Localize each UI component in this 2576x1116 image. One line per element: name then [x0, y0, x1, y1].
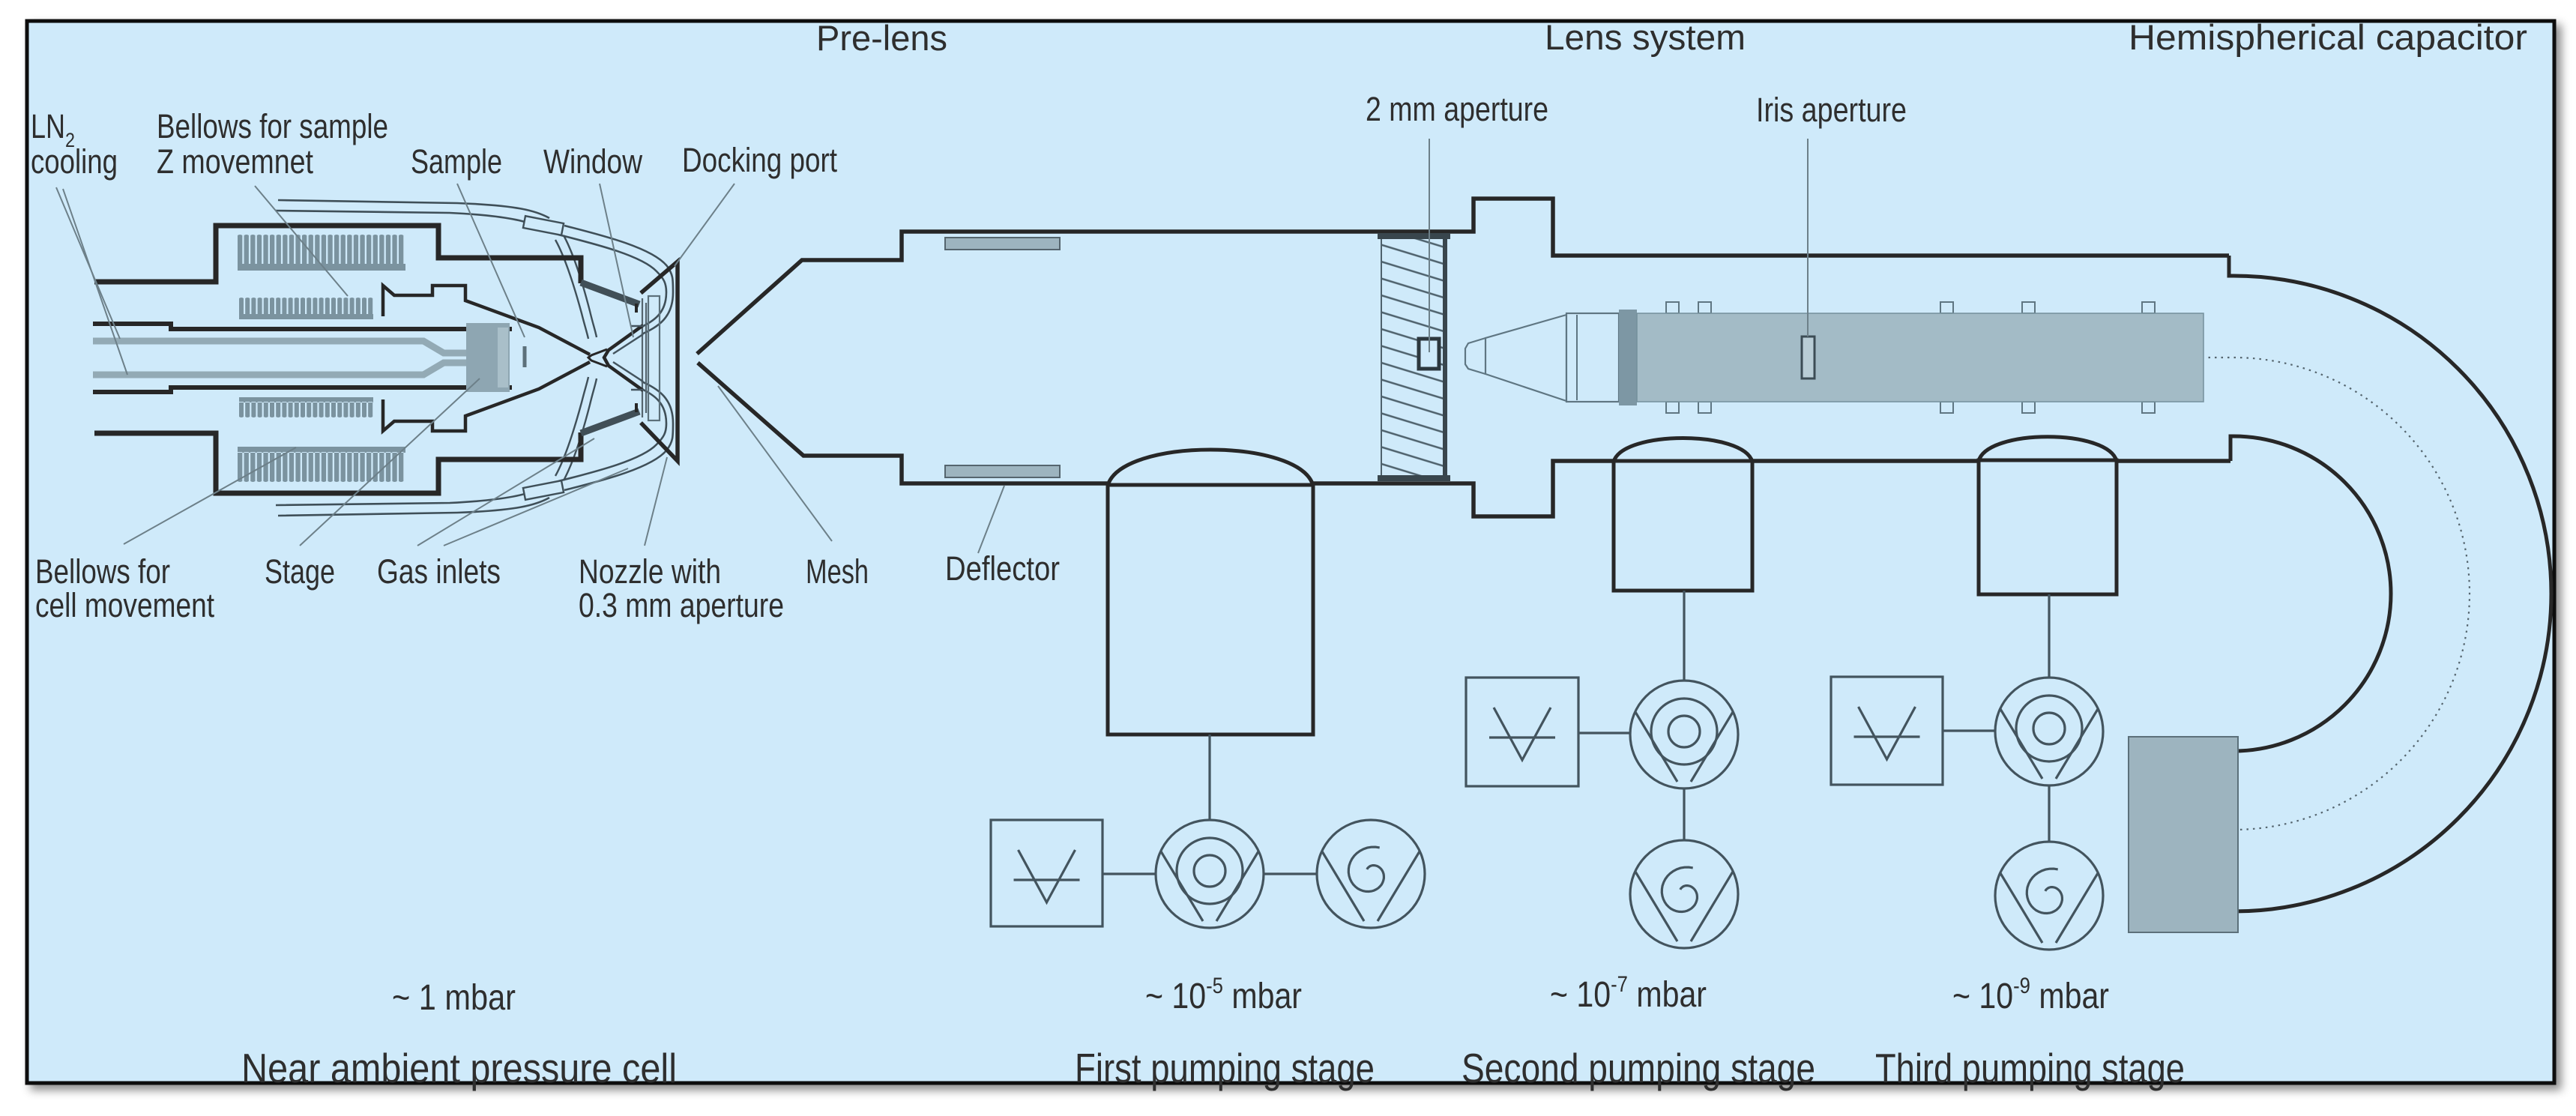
svg-text:Docking port: Docking port [682, 141, 837, 179]
svg-text:Nozzle with: Nozzle with [579, 552, 721, 591]
svg-text:First pumping stage: First pumping stage [1075, 1045, 1375, 1091]
svg-text:Deflector: Deflector [945, 549, 1060, 588]
svg-text:Near ambient pressure cell: Near ambient pressure cell [241, 1045, 677, 1091]
svg-text:Gas inlets: Gas inlets [377, 552, 501, 591]
svg-text:Bellows for sample: Bellows for sample [157, 107, 388, 145]
svg-text:~ 10-9 mbar: ~ 10-9 mbar [1952, 974, 2109, 1016]
svg-text:0.3 mm aperture: 0.3 mm aperture [579, 586, 784, 624]
svg-text:cell movement: cell movement [35, 586, 214, 624]
svg-text:Window: Window [543, 142, 642, 181]
svg-text:~ 10-5 mbar: ~ 10-5 mbar [1145, 974, 1302, 1016]
svg-text:Second pumping stage: Second pumping stage [1462, 1045, 1815, 1091]
svg-text:Pre-lens: Pre-lens [816, 18, 947, 58]
svg-text:Stage: Stage [265, 552, 335, 591]
svg-text:Bellows for: Bellows for [35, 552, 170, 591]
svg-text:LN: LN [31, 107, 65, 145]
svg-text:Hemispherical capacitor: Hemispherical capacitor [2129, 17, 2527, 57]
svg-text:Lens system: Lens system [1545, 17, 1746, 57]
svg-text:Third pumping stage: Third pumping stage [1875, 1045, 2185, 1091]
svg-text:Iris aperture: Iris aperture [1756, 91, 1907, 129]
svg-text:Mesh: Mesh [806, 552, 869, 591]
svg-text:Z movemnet: Z movemnet [157, 142, 313, 181]
svg-text:cooling: cooling [31, 142, 118, 181]
svg-text:~ 10-7 mbar: ~ 10-7 mbar [1550, 972, 1707, 1015]
svg-text:2 mm aperture: 2 mm aperture [1366, 90, 1548, 128]
svg-text:Sample: Sample [411, 142, 502, 181]
svg-text:~ 1 mbar: ~ 1 mbar [392, 978, 516, 1018]
